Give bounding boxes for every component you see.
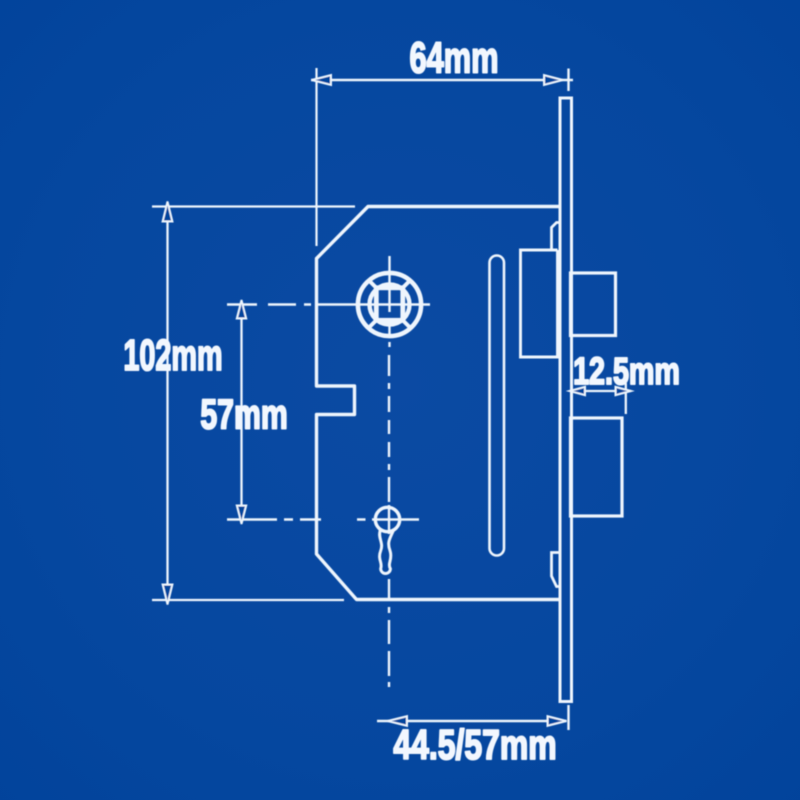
svg-text:64mm: 64mm xyxy=(409,34,498,83)
svg-text:12.5mm: 12.5mm xyxy=(573,351,680,393)
svg-text:102mm: 102mm xyxy=(123,330,222,380)
svg-text:57mm: 57mm xyxy=(200,391,287,438)
svg-text:44.5/57mm: 44.5/57mm xyxy=(393,721,556,768)
